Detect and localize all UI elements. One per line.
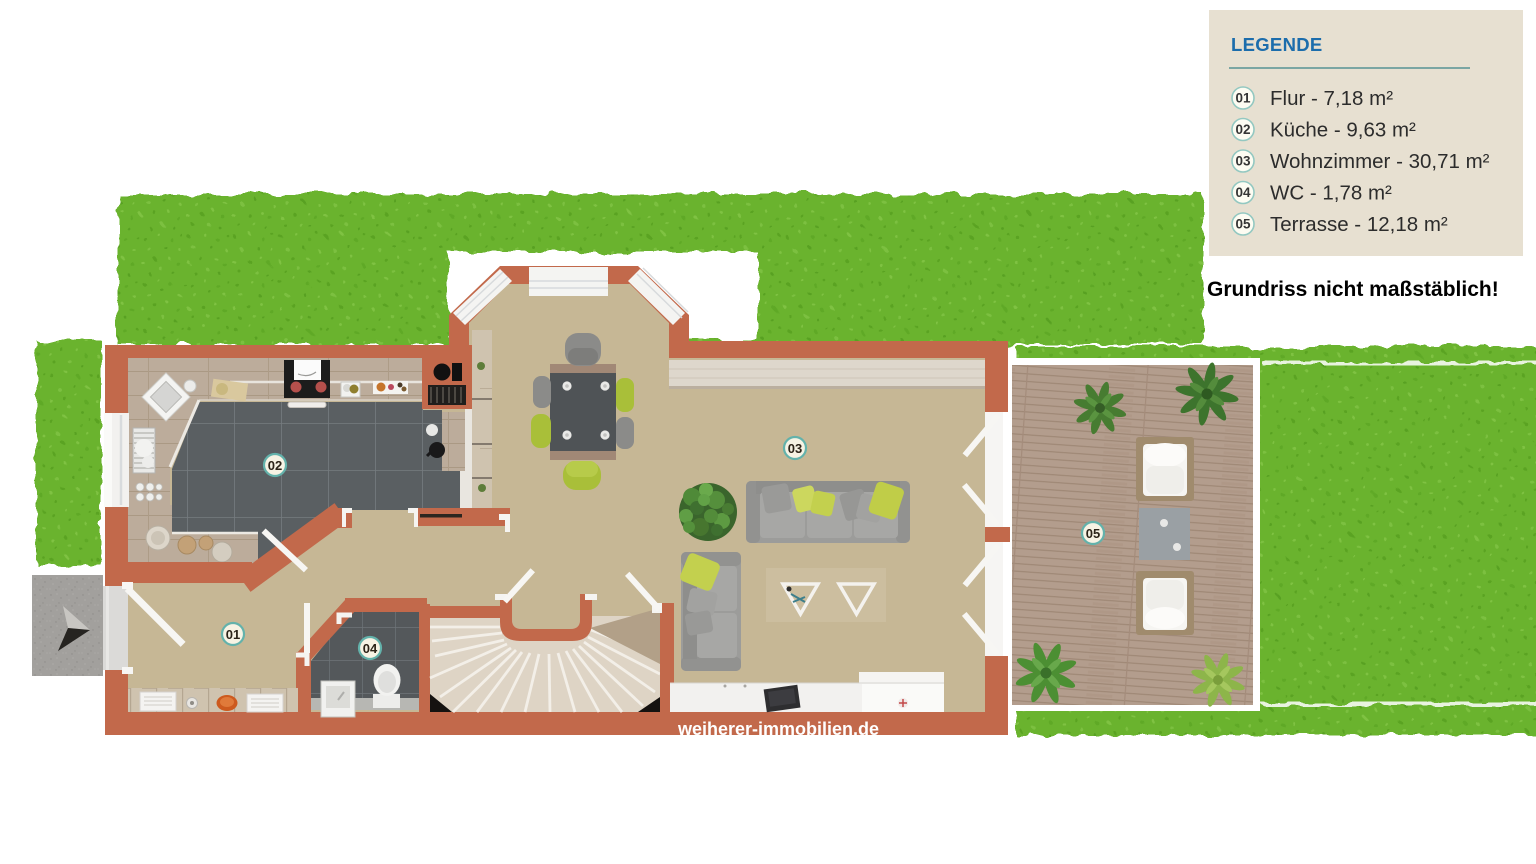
svg-text:weiherer-immobilien.de: weiherer-immobilien.de <box>677 719 879 739</box>
svg-text:Wohnzimmer - 30,71 m²: Wohnzimmer - 30,71 m² <box>1270 150 1490 173</box>
svg-text:03: 03 <box>788 441 802 456</box>
svg-text:02: 02 <box>268 458 282 473</box>
svg-text:WC - 1,78 m²: WC - 1,78 m² <box>1270 182 1392 205</box>
svg-text:Flur - 7,18 m²: Flur - 7,18 m² <box>1270 87 1393 110</box>
svg-text:04: 04 <box>1235 185 1251 200</box>
svg-text:Terrasse - 12,18 m²: Terrasse - 12,18 m² <box>1270 213 1448 236</box>
svg-text:01: 01 <box>226 627 240 642</box>
svg-text:02: 02 <box>1235 122 1250 137</box>
svg-text:05: 05 <box>1235 217 1251 232</box>
svg-text:03: 03 <box>1235 154 1251 169</box>
svg-text:05: 05 <box>1086 526 1100 541</box>
svg-text:01: 01 <box>1235 91 1251 106</box>
svg-text:Küche - 9,63 m²: Küche - 9,63 m² <box>1270 119 1416 142</box>
svg-text:04: 04 <box>363 641 378 656</box>
svg-text:Grundriss nicht maßstäblich!: Grundriss nicht maßstäblich! <box>1207 278 1499 301</box>
svg-text:LEGENDE: LEGENDE <box>1231 34 1323 55</box>
